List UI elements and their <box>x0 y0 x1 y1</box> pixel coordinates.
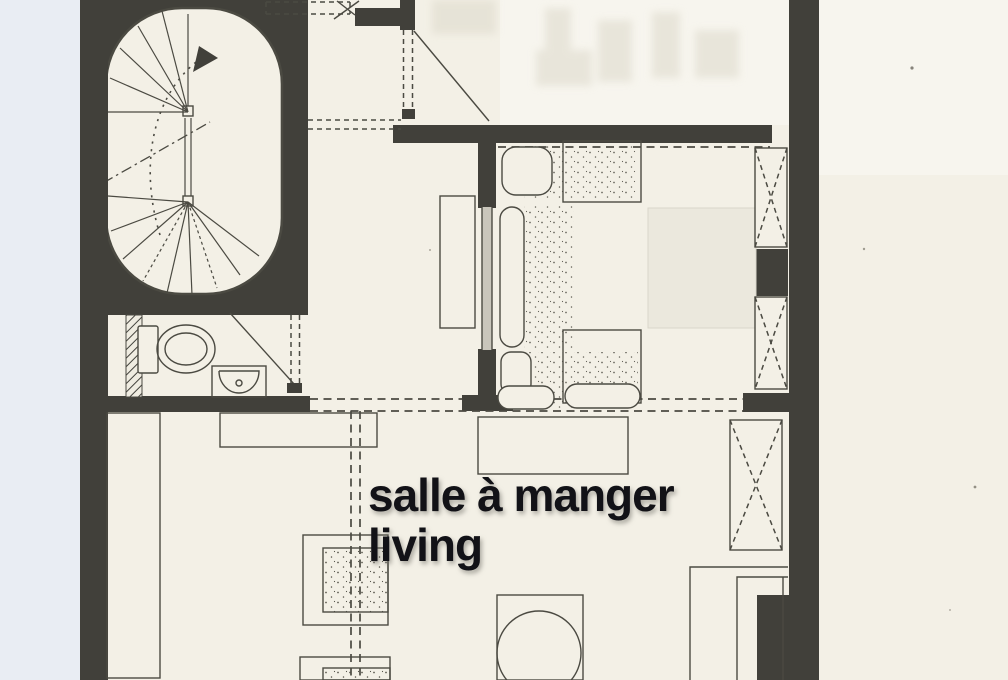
scanned-floorplan-page: salle à manger living <box>0 0 1008 680</box>
staircase-enclosure <box>80 0 308 315</box>
glazed-partition <box>440 196 492 350</box>
floorplan-svg: salle à manger living <box>0 0 1008 680</box>
window-x-icon <box>755 297 787 389</box>
bed <box>648 208 756 328</box>
window-x-icon <box>730 420 782 550</box>
window-x-icon <box>755 148 787 247</box>
door-panel <box>440 196 475 328</box>
room-label-line1: salle à manger <box>368 469 675 521</box>
room-label-line2: living <box>368 519 482 571</box>
